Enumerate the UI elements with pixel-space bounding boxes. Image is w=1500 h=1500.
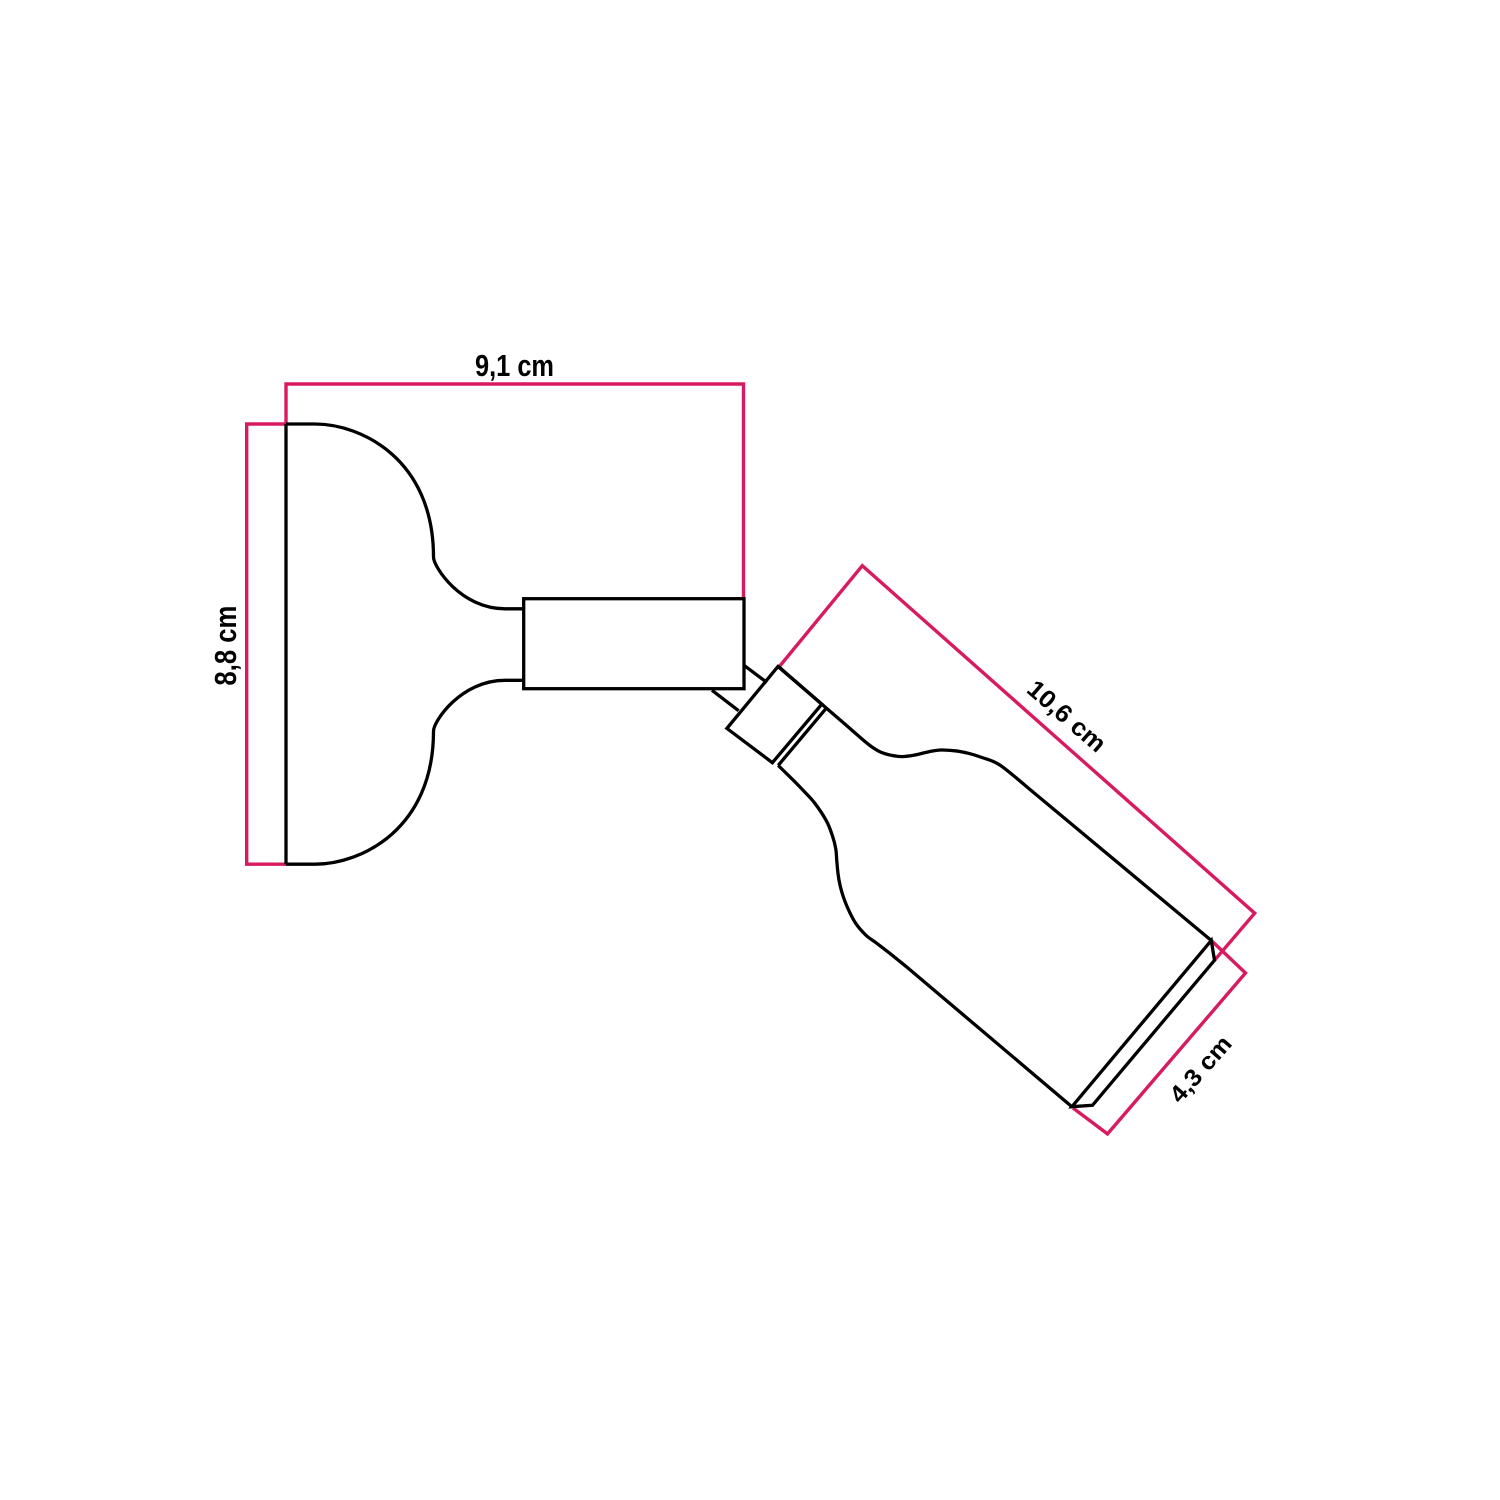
svg-text:9,1 cm: 9,1 cm <box>475 348 554 383</box>
svg-text:8,8 cm: 8,8 cm <box>208 606 243 686</box>
